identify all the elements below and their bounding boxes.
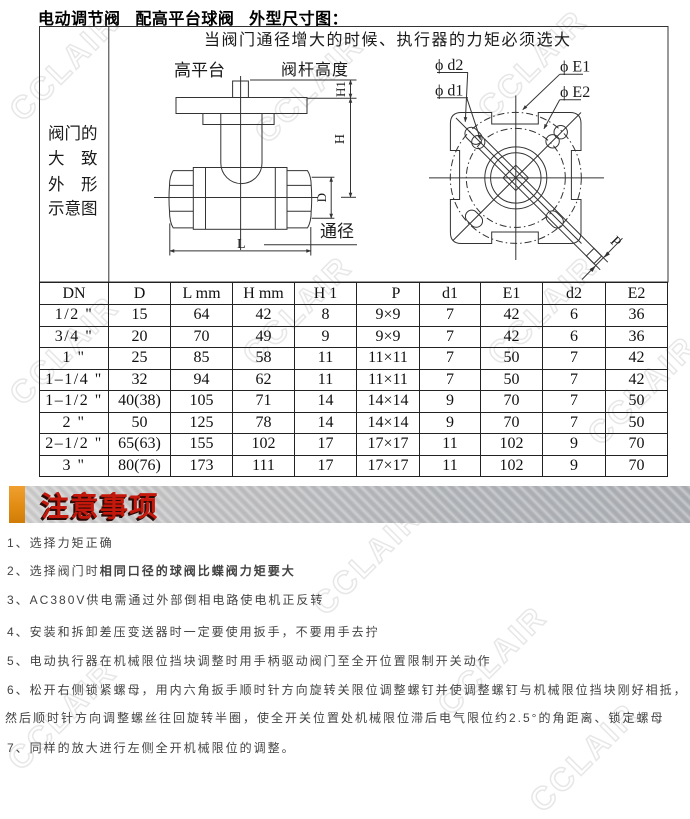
svg-text:ϕ d2: ϕ d2 <box>435 57 463 74</box>
svg-text:D: D <box>314 193 329 202</box>
svg-text:ϕ E1: ϕ E1 <box>560 59 590 76</box>
svg-text:ϕ E2: ϕ E2 <box>560 84 590 101</box>
svg-text:H1: H1 <box>333 81 348 97</box>
svg-text:L: L <box>237 237 246 252</box>
svg-text:ϕ d1: ϕ d1 <box>435 83 463 100</box>
svg-text:P: P <box>607 234 624 251</box>
svg-text:H: H <box>333 134 348 144</box>
